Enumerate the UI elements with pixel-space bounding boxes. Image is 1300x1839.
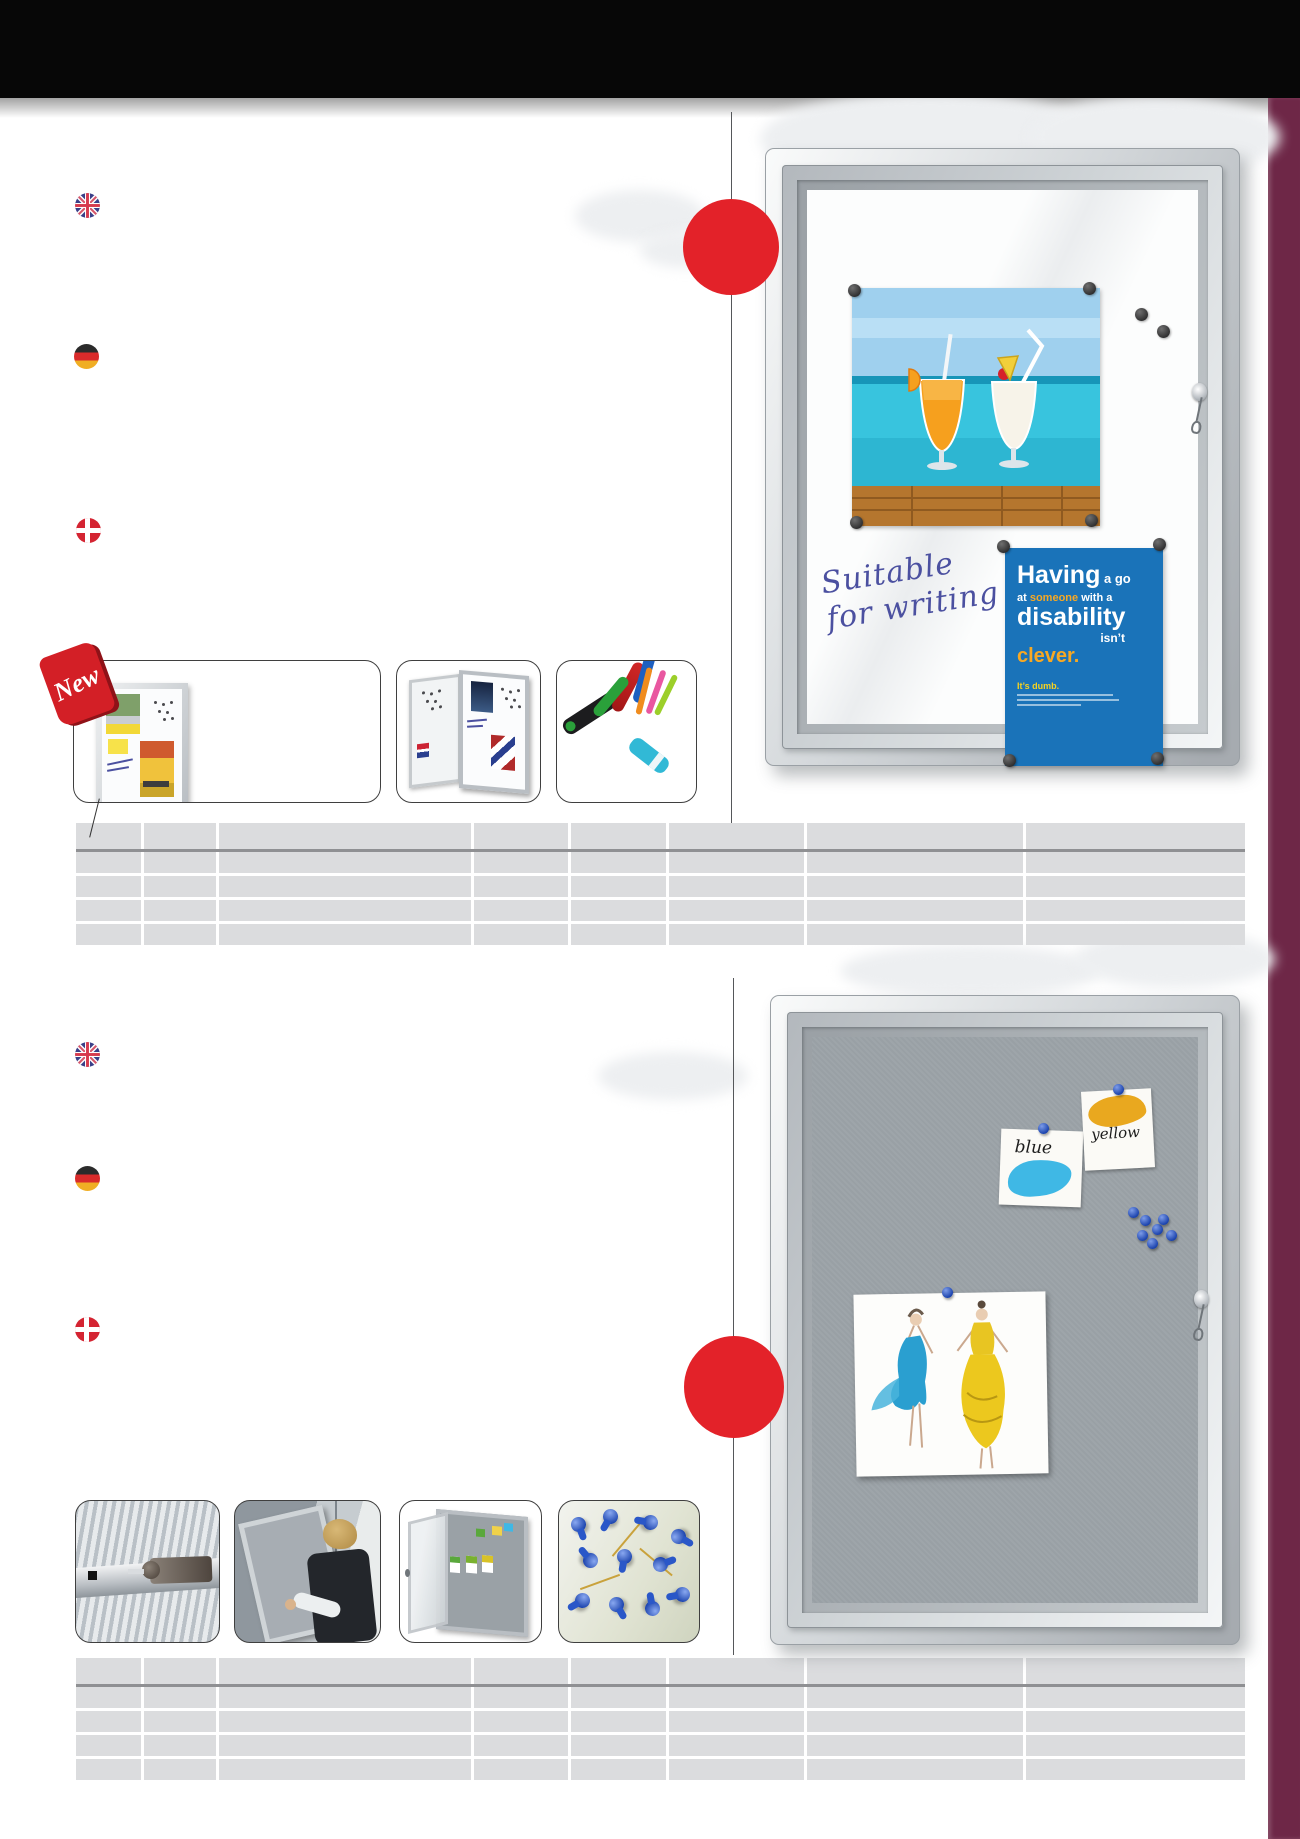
table-cell <box>1026 823 1245 849</box>
table-cell <box>1026 1658 1245 1684</box>
blue-push-pin <box>569 1515 588 1534</box>
push-pin <box>1152 1224 1163 1235</box>
push-pin <box>1147 1238 1158 1249</box>
blue-push-pin <box>572 1590 592 1610</box>
table-row <box>76 1759 1245 1780</box>
mini-sketch <box>450 1556 460 1573</box>
table-cell <box>669 900 804 921</box>
mini-note <box>492 1526 502 1536</box>
table-cell <box>571 1658 666 1684</box>
table-cell <box>807 900 1023 921</box>
mini-note <box>504 1523 513 1532</box>
table-cell <box>219 1759 471 1780</box>
table-cell <box>76 1759 141 1780</box>
magnet <box>1157 325 1170 338</box>
table-cell <box>219 852 471 873</box>
magnet <box>1083 282 1096 295</box>
table-cell <box>669 1711 804 1732</box>
table-cell <box>571 1711 666 1732</box>
magnet <box>1003 754 1016 767</box>
mini-writing <box>467 725 483 728</box>
table-cell <box>571 1687 666 1708</box>
magnet <box>1151 752 1164 765</box>
table-cell <box>219 1735 471 1756</box>
table-cell <box>474 876 568 897</box>
table-cell <box>144 900 216 921</box>
marker-turquoise <box>626 735 671 775</box>
table-cell <box>76 924 141 945</box>
table-cell <box>474 852 568 873</box>
magnet <box>1135 308 1148 321</box>
fashion-sketch-paper <box>853 1291 1048 1476</box>
table-cell <box>571 823 666 849</box>
table-cell <box>219 823 471 849</box>
table-cell <box>571 1759 666 1780</box>
mini-sticky-note <box>108 739 128 754</box>
table-cell <box>669 1687 804 1708</box>
rail-slot <box>88 1571 97 1580</box>
table-header-row <box>76 1658 1245 1684</box>
push-pin <box>1128 1207 1139 1218</box>
push-pin <box>1140 1215 1151 1226</box>
thumbnail-markers <box>556 660 697 803</box>
lock-icon <box>1192 383 1207 401</box>
table-row <box>76 900 1245 921</box>
spec-table-1 <box>76 823 1245 945</box>
table-cell <box>571 1735 666 1756</box>
table-cell <box>76 876 141 897</box>
section2-divider-line <box>733 978 734 1655</box>
table-cell <box>144 876 216 897</box>
magnet <box>1153 538 1166 551</box>
table-cell <box>474 1735 568 1756</box>
table-cell <box>474 1759 568 1780</box>
magnet <box>997 540 1010 553</box>
mini-lock <box>405 1569 410 1577</box>
magnet <box>850 516 863 529</box>
push-pin <box>1137 1230 1148 1241</box>
cocktail-photo <box>852 288 1100 526</box>
drill-chuck <box>142 1561 160 1579</box>
cyan-scribble <box>1006 1157 1073 1198</box>
table-cell <box>1026 900 1245 921</box>
table-cell <box>807 1658 1023 1684</box>
blue-push-pin <box>616 1548 633 1565</box>
table-cell <box>76 1711 141 1732</box>
open-case-body <box>459 670 529 794</box>
table-cell <box>219 1687 471 1708</box>
drill-bit <box>128 1569 144 1574</box>
table-cell <box>76 1735 141 1756</box>
table-cell <box>571 924 666 945</box>
table-cell <box>1026 876 1245 897</box>
mini-car-photo <box>471 681 493 713</box>
person-body <box>306 1548 377 1643</box>
product-photo-whiteboard-case: Suitable for writing Having a go at some… <box>765 148 1240 766</box>
table-row <box>76 1735 1245 1756</box>
poster-line5: clever. <box>1017 645 1153 667</box>
table-cell <box>669 924 804 945</box>
table-cell <box>1026 1759 1245 1780</box>
table-cell <box>571 876 666 897</box>
section1-red-dot-badge <box>683 199 779 295</box>
push-pin <box>1113 1084 1124 1095</box>
sticky-note-blue-word: blue <box>1014 1137 1052 1158</box>
table-cell <box>571 900 666 921</box>
thumbnail-wall-mounting <box>75 1500 220 1643</box>
push-pin <box>1038 1123 1049 1134</box>
blue-push-pin <box>600 1506 620 1526</box>
table-cell <box>807 1735 1023 1756</box>
blue-push-pin <box>668 1526 688 1546</box>
push-pin <box>942 1287 953 1298</box>
blue-push-pin <box>580 1550 601 1571</box>
blue-push-pin <box>644 1600 661 1617</box>
table-cell <box>807 852 1023 873</box>
sticky-note-yellow-word: yellow <box>1091 1123 1141 1144</box>
mini-magnet-dots <box>154 701 157 704</box>
thumbnail-hanging-board <box>234 1500 381 1643</box>
thumbnail-push-pins <box>558 1500 700 1643</box>
pin-needle <box>580 1574 620 1590</box>
right-accent-bar <box>1268 97 1300 1839</box>
table-cell <box>144 1687 216 1708</box>
poster-line1-big: Having <box>1017 561 1100 589</box>
open-case-body <box>436 1509 528 1637</box>
table-cell <box>474 900 568 921</box>
blue-push-pin <box>674 1586 691 1603</box>
section2-red-dot-badge <box>684 1336 784 1438</box>
uk-flag-icon <box>75 193 100 218</box>
open-door-panel <box>408 1512 448 1634</box>
poster-fine-print <box>1017 694 1113 696</box>
denmark-flag-icon <box>76 518 101 543</box>
table-cell <box>807 1687 1023 1708</box>
lock-icon <box>1194 1290 1209 1308</box>
person-hand <box>285 1599 296 1610</box>
mini-sketch <box>482 1555 493 1573</box>
table-cell <box>669 1759 804 1780</box>
table-cell <box>669 852 804 873</box>
table-row <box>76 876 1245 897</box>
new-badge-label: New <box>49 660 105 708</box>
table-row <box>76 852 1245 873</box>
table-cell <box>669 1735 804 1756</box>
cloud-shape <box>840 945 1100 997</box>
table-row <box>76 1687 1245 1708</box>
spec-table-2 <box>76 1658 1245 1780</box>
mini-writing <box>467 719 487 723</box>
table-cell <box>76 852 141 873</box>
table-cell <box>807 1759 1023 1780</box>
magnet <box>1085 514 1098 527</box>
table-cell <box>219 1711 471 1732</box>
mini-magnet-dots <box>422 691 425 694</box>
table-cell <box>1026 852 1245 873</box>
table-row <box>76 1711 1245 1732</box>
push-pin <box>1158 1214 1169 1225</box>
table-cell <box>144 1711 216 1732</box>
sticky-note-blue: blue <box>999 1129 1084 1208</box>
table-cell <box>1026 1711 1245 1732</box>
table-cell <box>76 823 141 849</box>
table-cell <box>807 1711 1023 1732</box>
table-cell <box>474 924 568 945</box>
table-cell <box>219 876 471 897</box>
poster-tagline: It’s dumb. <box>1017 681 1153 691</box>
cloud-shape <box>598 1052 748 1100</box>
blue-push-pin <box>606 1594 626 1614</box>
table-cell <box>669 1658 804 1684</box>
table-cell <box>1026 1687 1245 1708</box>
blue-push-pin <box>642 1514 659 1531</box>
table-cell <box>144 852 216 873</box>
person-hair <box>323 1519 357 1549</box>
table-header-row <box>76 823 1245 849</box>
table-cell <box>219 1658 471 1684</box>
uk-flag-icon <box>75 1042 100 1067</box>
table-cell <box>669 876 804 897</box>
product-photo-pinboard-case: blue yellow <box>770 995 1240 1645</box>
table-cell <box>669 823 804 849</box>
germany-flag-icon <box>75 1166 100 1191</box>
thumbnail-open-pinboard-case <box>399 1500 542 1643</box>
mini-ad-card <box>140 741 174 797</box>
mini-writing <box>107 766 129 772</box>
denmark-flag-icon <box>75 1317 100 1342</box>
thumbnail-mini-whiteboard-case <box>73 660 381 803</box>
mini-flag-poster <box>491 735 515 771</box>
mini-magnet-dots <box>501 688 504 691</box>
disability-poster: Having a go at someone with a disability… <box>1005 548 1163 766</box>
table-cell <box>807 823 1023 849</box>
table-cell <box>76 900 141 921</box>
table-cell <box>144 924 216 945</box>
germany-flag-icon <box>74 344 99 369</box>
page-header-bar <box>0 0 1300 98</box>
table-cell <box>1026 1735 1245 1756</box>
mini-sketch <box>466 1556 477 1574</box>
table-cell <box>76 1687 141 1708</box>
table-cell <box>144 1735 216 1756</box>
table-cell <box>76 1658 141 1684</box>
table-cell <box>474 1658 568 1684</box>
table-cell <box>219 900 471 921</box>
sticky-note-yellow: yellow <box>1081 1088 1155 1171</box>
mini-writing <box>107 758 133 765</box>
poster-fine-print <box>1017 704 1081 706</box>
mini-poster <box>417 743 429 758</box>
table-cell <box>807 876 1023 897</box>
table-cell <box>144 1658 216 1684</box>
table-cell <box>807 924 1023 945</box>
table-cell <box>474 1711 568 1732</box>
magnet <box>848 284 861 297</box>
mini-note <box>476 1528 485 1537</box>
table-row <box>76 924 1245 945</box>
table-cell <box>474 823 568 849</box>
poster-line4: isn’t <box>1017 631 1153 645</box>
table-cell <box>571 852 666 873</box>
table-cell <box>144 823 216 849</box>
poster-line1-small: a go <box>1100 571 1130 586</box>
table-cell <box>1026 924 1245 945</box>
push-pin <box>1166 1230 1177 1241</box>
poster-fine-print <box>1017 699 1119 701</box>
table-cell <box>144 1759 216 1780</box>
thumbnail-open-whiteboard-case <box>396 660 541 803</box>
poster-line3: disability <box>1017 604 1153 630</box>
table-cell <box>219 924 471 945</box>
table-cell <box>474 1687 568 1708</box>
open-door-panel <box>409 674 461 788</box>
